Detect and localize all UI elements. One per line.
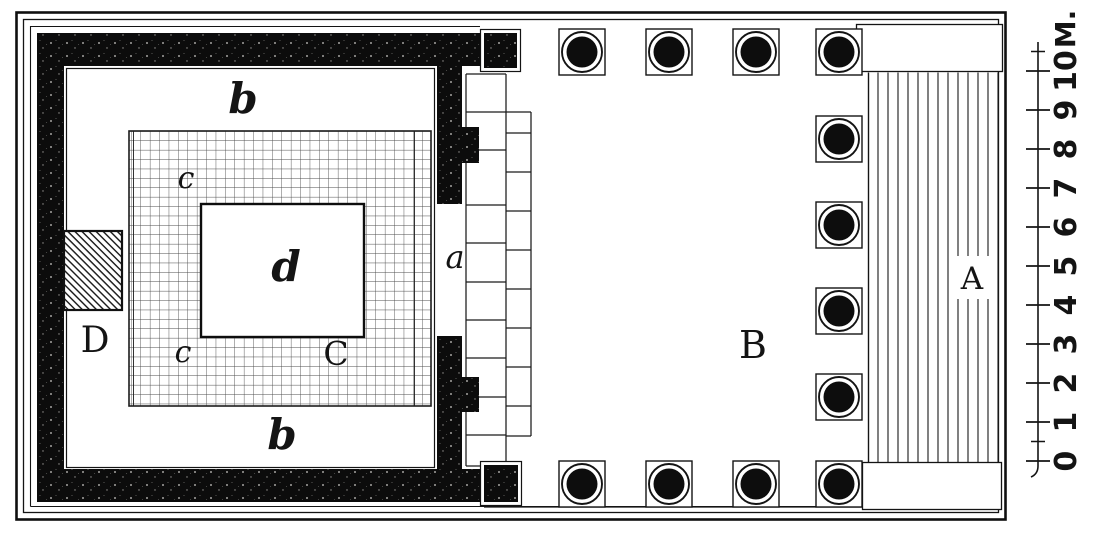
naos-wall-east-lower	[437, 336, 462, 470]
scale-label-5: 5	[1049, 256, 1084, 277]
column	[816, 202, 862, 248]
column	[646, 29, 692, 75]
column	[733, 29, 779, 75]
label-corridor-b-bottom: b	[267, 410, 296, 459]
label-pronaos-B: B	[739, 323, 767, 367]
column	[646, 461, 692, 507]
scale-bar: 0 1 2 3 4 5 6 7 8 9 10 M.	[1026, 10, 1084, 477]
door-jamb-upper	[461, 127, 479, 163]
scale-unit-label: M.	[1049, 10, 1082, 49]
scale-label-0: 0	[1049, 451, 1084, 472]
scale-label-7: 7	[1049, 178, 1084, 199]
scale-label-1: 1	[1049, 412, 1084, 433]
column	[816, 374, 862, 420]
label-side-chamber-D: D	[81, 320, 110, 361]
scale-label-9: 9	[1049, 100, 1084, 121]
column	[559, 461, 605, 507]
figure-temple-plan: 0 1 2 3 4 5 6 7 8 9 10 M. b b c c C d D …	[0, 0, 1110, 534]
column	[733, 461, 779, 507]
anta-block-bottom	[484, 465, 518, 502]
label-floor-c-top: c	[178, 161, 195, 196]
scale-label-2: 2	[1049, 373, 1084, 394]
column	[559, 29, 605, 75]
platform-band-bottom	[863, 463, 1002, 510]
column	[816, 288, 862, 334]
naos-wall-left	[37, 33, 64, 502]
column	[816, 461, 862, 507]
column	[816, 116, 862, 162]
scale-label-4: 4	[1049, 295, 1084, 316]
scale-label-3: 3	[1049, 334, 1084, 355]
naos-wall-east-upper	[437, 66, 462, 204]
label-doorway-a: a	[445, 238, 464, 276]
hatched-door-block	[64, 231, 122, 310]
naos-wall-top	[37, 33, 481, 66]
column	[816, 29, 862, 75]
scale-label-6: 6	[1049, 217, 1084, 238]
scale-label-10: 10	[1049, 50, 1084, 92]
door-jamb-lower	[461, 377, 479, 412]
label-corridor-b-top: b	[228, 74, 257, 123]
label-sanctuary-d: d	[271, 242, 300, 291]
platform-band-top	[857, 25, 1003, 72]
label-hall-C: C	[323, 334, 348, 373]
scale-line	[1031, 42, 1038, 477]
temple-plan-drawing: 0 1 2 3 4 5 6 7 8 9 10 M. b b c c C d D …	[0, 0, 1110, 534]
anta-block-top	[484, 33, 517, 68]
label-steps-A: A	[960, 261, 984, 297]
label-floor-c-bottom: c	[175, 335, 192, 370]
naos-wall-bottom	[37, 469, 481, 502]
peristyle-columns	[559, 29, 862, 507]
scale-label-8: 8	[1049, 139, 1084, 160]
